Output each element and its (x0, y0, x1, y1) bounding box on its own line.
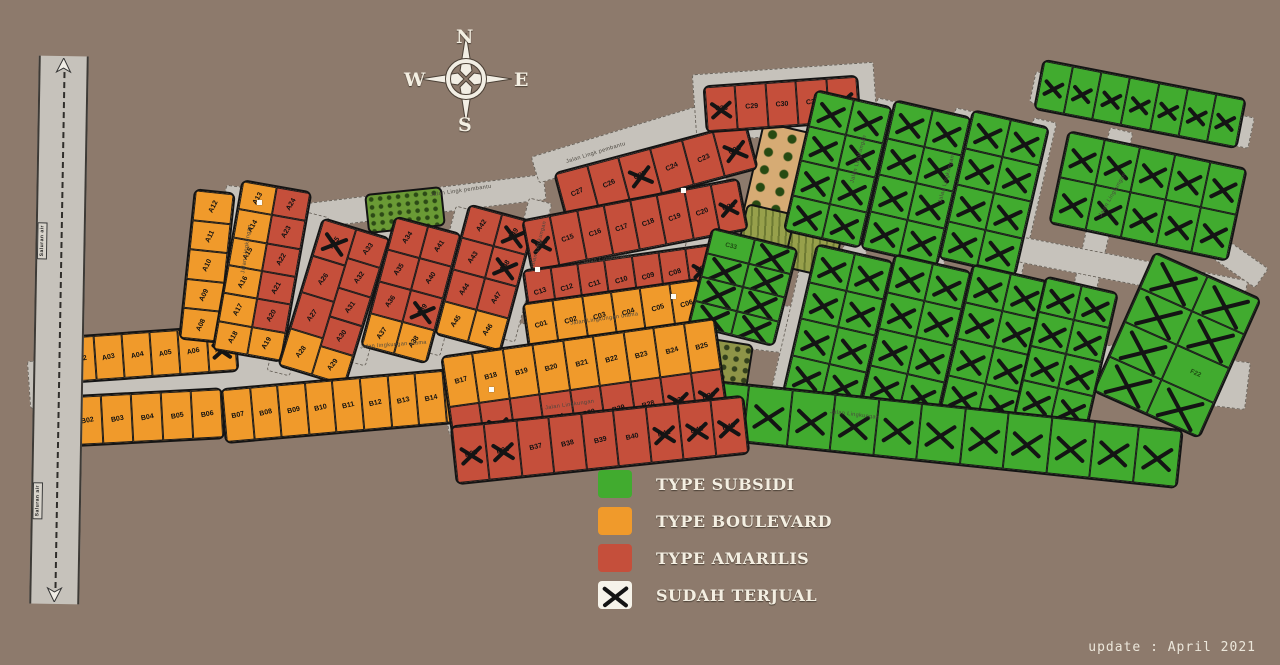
lot-label: A36 (384, 294, 397, 309)
legend-item-subsidi: TYPE SUBSIDI (598, 470, 832, 498)
lot-label: B23 (635, 350, 649, 360)
lot-label: B08 (259, 408, 273, 418)
lot-label: A42 (475, 219, 488, 234)
lot-label: A32 (352, 271, 365, 285)
lot-label: B10 (314, 403, 328, 413)
lot-label: A25 (328, 235, 341, 249)
lot-label: A06 (186, 346, 200, 356)
lot-A05: A05 (150, 330, 181, 376)
lot-label: B36 (496, 445, 510, 455)
lot-label: C30 (775, 100, 788, 108)
lot-label: C24 (664, 161, 679, 173)
lot-label: A34 (401, 231, 414, 246)
lot-sold (744, 386, 793, 446)
legend: TYPE SUBSIDI TYPE BOULEVARD TYPE AMARILI… (598, 470, 832, 618)
compass-south-label: S (458, 114, 472, 136)
lot-label: B14 (424, 393, 438, 403)
lot-label: B43 (722, 421, 736, 431)
lot-label: B09 (286, 405, 300, 415)
lot-label: A41 (433, 239, 446, 254)
lot-label: A46 (482, 323, 495, 338)
lot-label: A33 (361, 242, 374, 256)
lot-label: C28 (715, 104, 728, 112)
lot-label: C25 (633, 169, 648, 181)
lot-label: B21 (574, 358, 588, 368)
lot-A03: A03 (93, 334, 124, 380)
lot-sold (1089, 422, 1138, 482)
lot-label: F22 (1189, 368, 1202, 379)
lot-label: A43 (467, 251, 480, 266)
lot-sold (960, 408, 1009, 468)
arrow-up-icon (55, 58, 71, 74)
lot-sold (1133, 427, 1182, 487)
lot-label: A18 (227, 330, 239, 345)
lot-label: B12 (369, 398, 383, 408)
lot-sold (787, 390, 836, 450)
lot-label: A31 (344, 300, 357, 314)
lot-label: C10 (614, 275, 628, 286)
lot-label: A35 (393, 263, 406, 278)
lot-label: A04 (130, 350, 144, 360)
lot-label: C13 (533, 286, 547, 297)
compass-rose: N E S W (398, 6, 534, 152)
lot-label: B13 (396, 396, 410, 406)
lot-label: A44 (458, 282, 471, 297)
lot-label: A37 (376, 326, 389, 341)
lot-label: A28 (294, 344, 307, 358)
lot-label: C17 (614, 222, 628, 233)
lot-label: B05 (170, 411, 184, 420)
lot-label: A23 (280, 225, 292, 240)
lot-A46: A46 (468, 310, 508, 350)
lot-label: B22 (604, 354, 618, 364)
lot-A12: A12 (193, 190, 234, 223)
lot-label: B20 (544, 362, 558, 372)
lot-label: B38 (561, 438, 575, 448)
lot-label: C21 (721, 201, 735, 212)
lot-label: A45 (450, 314, 463, 329)
lot-B03: B03 (101, 394, 133, 444)
lot-label: A39 (416, 303, 429, 318)
drainage-channel-road: Saluran air Saluran air (29, 56, 89, 605)
lot-label: A03 (102, 352, 116, 362)
lot-label: B04 (140, 413, 154, 422)
lot-label: A24 (285, 197, 297, 212)
lot-label: B06 (200, 409, 214, 418)
lot-sold (916, 404, 965, 464)
lot-label: B19 (514, 367, 528, 377)
lot-label: A40 (425, 271, 438, 286)
lot-label: C15 (561, 232, 575, 243)
lot-label: C19 (668, 212, 682, 223)
lot-label: B41 (657, 428, 671, 438)
lot-label: C29 (745, 102, 758, 110)
lot-B43: B43 (710, 397, 748, 456)
lot-sold (830, 395, 879, 455)
lot-sold (1003, 413, 1052, 473)
lot-label: C05 (650, 303, 664, 314)
lot-label: B24 (665, 345, 679, 355)
lot-A04: A04 (121, 332, 152, 378)
lot-label: C11 (587, 279, 601, 290)
update-text: update : April 2021 (1088, 640, 1256, 655)
compass-east-label: E (514, 69, 528, 91)
lot-label: A08 (195, 318, 207, 333)
lot-label: A10 (201, 259, 213, 274)
lot-label: A29 (326, 358, 339, 372)
legend-label-amarilis: TYPE AMARILIS (656, 549, 809, 568)
lot-label: A17 (232, 303, 244, 318)
legend-label-subsidi: TYPE SUBSIDI (656, 475, 795, 494)
compass-west-label: W (404, 69, 425, 91)
lot-label: A11 (204, 229, 216, 243)
amarilis-color-swatch (598, 544, 632, 572)
arrow-down-icon (46, 586, 62, 602)
lot-sold (873, 399, 922, 459)
lot-label: A48 (499, 259, 512, 274)
legend-label-sold: SUDAH TERJUAL (656, 586, 817, 605)
lot-label: C23 (696, 152, 711, 164)
lot-label: B17 (454, 375, 468, 385)
channel-label-bottom: Saluran air (32, 482, 43, 520)
block-Gtop (1033, 59, 1247, 150)
marker-dot (681, 188, 686, 193)
lot-label: A09 (198, 288, 210, 303)
lot-label: A05 (158, 348, 172, 358)
lot-label: B42 (690, 425, 704, 435)
lot-label: A30 (335, 329, 348, 343)
marker-dot (535, 267, 540, 272)
lot-label: C08 (668, 267, 682, 278)
lot-label: C22 (728, 144, 743, 156)
lot-C30: C30 (765, 81, 798, 127)
lot-label: C16 (588, 227, 602, 238)
lot-label: C20 (695, 206, 709, 217)
lot-label: A19 (260, 336, 272, 351)
legend-item-boulevard: TYPE BOULEVARD (598, 507, 832, 535)
block-GR1 (1048, 130, 1248, 262)
lot-label: B25 (695, 341, 709, 351)
marker-dot (257, 200, 262, 205)
lot-label: C26 (601, 178, 616, 190)
lot-label: A27 (306, 308, 319, 322)
lot-label: C12 (560, 282, 574, 293)
lot-sold (1046, 418, 1095, 478)
lot-B05: B05 (161, 391, 193, 441)
lot-label: A21 (270, 281, 282, 296)
lot-label: A20 (265, 308, 277, 323)
lot-label: A47 (490, 291, 503, 306)
sold-x-swatch (598, 581, 632, 609)
lot-label: B40 (625, 432, 639, 442)
lot-label: C33 (724, 241, 737, 251)
lot-sold (822, 204, 867, 247)
subsidi-color-swatch (598, 470, 632, 498)
lot-C29: C29 (735, 83, 768, 129)
lot-label: C09 (641, 271, 655, 282)
lot-label: A16 (237, 275, 249, 290)
boulevard-color-swatch (598, 507, 632, 535)
lot-label: A12 (207, 200, 219, 215)
lot-label: A26 (317, 272, 330, 286)
legend-label-boulevard: TYPE BOULEVARD (656, 512, 832, 531)
lot-A10: A10 (187, 249, 228, 282)
lot-sold (1191, 207, 1236, 259)
legend-item-amarilis: TYPE AMARILIS (598, 544, 832, 572)
lot-label: C01 (534, 319, 548, 330)
lot-label: B39 (593, 435, 607, 445)
lot-sold (1201, 162, 1246, 214)
marker-dot (489, 387, 494, 392)
lot-label: A49 (507, 227, 520, 242)
lot-B25: B25 (684, 319, 721, 373)
lot-A11: A11 (190, 220, 231, 253)
siteplan-map: Saluran air Saluran air N E S W TYPE SUB… (0, 0, 1280, 665)
lot-C28: C28 (705, 85, 738, 131)
road-centerline (54, 72, 65, 588)
lot-A18: A18 (214, 321, 252, 355)
lot-label: B35 (464, 449, 478, 459)
lot-label: B03 (110, 414, 124, 423)
lot-B04: B04 (131, 392, 163, 442)
lot-label: C27 (570, 186, 585, 198)
lot-label: B11 (341, 400, 355, 410)
lot-B06: B06 (191, 389, 223, 439)
lot-label: A22 (275, 253, 287, 268)
lot-label: C18 (641, 217, 655, 228)
channel-label-top: Saluran air (37, 222, 48, 260)
lot-label: B37 (528, 442, 542, 452)
compass-north-label: N (456, 26, 473, 48)
lot-label: B07 (231, 410, 245, 420)
marker-dot (671, 294, 676, 299)
legend-item-sold: SUDAH TERJUAL (598, 581, 832, 609)
lot-label: B18 (484, 371, 498, 381)
